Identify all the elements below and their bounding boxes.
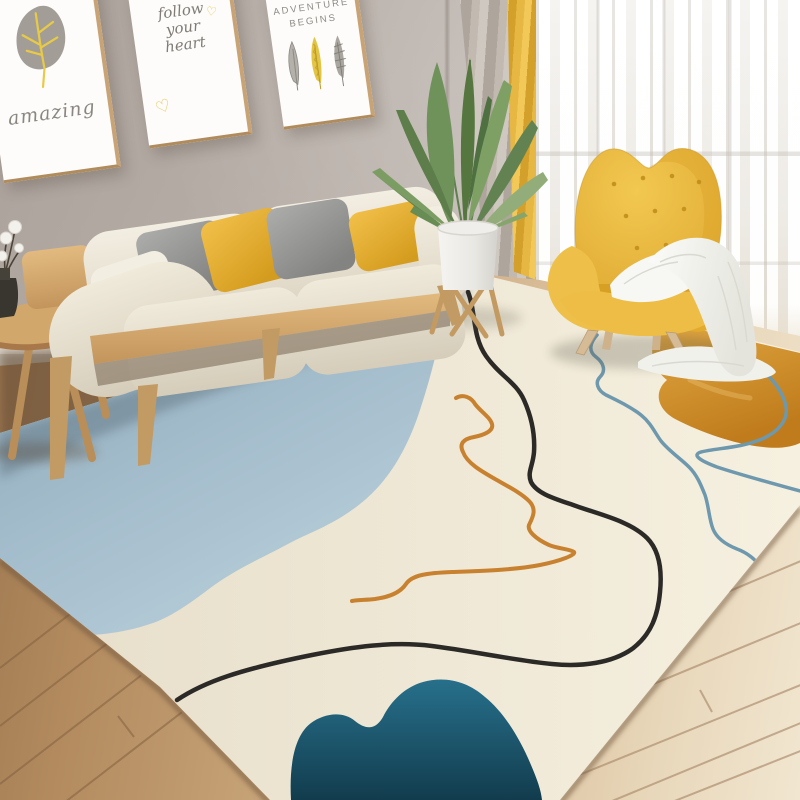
- living-room-photo: amazing follow your heart ♡ ♡ ADVENTURE …: [0, 0, 800, 800]
- vase: [0, 221, 24, 319]
- plant-pot: [438, 228, 498, 290]
- pillow-gray: [265, 197, 357, 281]
- scene-canvas: [0, 0, 800, 800]
- cotton-flowers: [0, 221, 24, 262]
